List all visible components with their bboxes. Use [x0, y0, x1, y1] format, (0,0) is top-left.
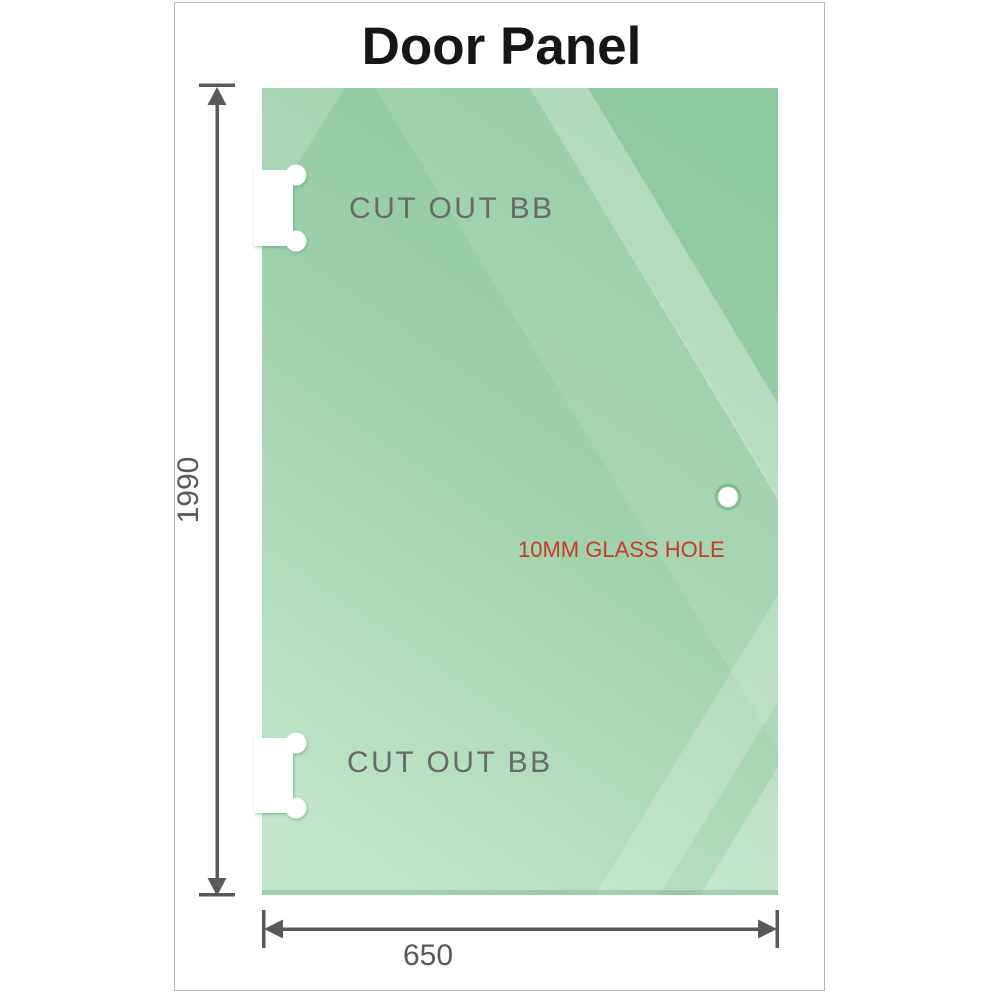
- height-dimension-value: 1990: [172, 457, 206, 524]
- door-panel-diagram: [0, 0, 1000, 1000]
- width-dimension-value: 650: [403, 939, 453, 973]
- glass-hole-label: 10MM GLASS HOLE: [518, 537, 725, 563]
- width-dimension-line: [262, 910, 779, 948]
- glass-hole: [715, 484, 742, 511]
- cutout-bottom-label: CUT OUT BB: [347, 746, 553, 780]
- page-title: Door Panel: [175, 16, 828, 77]
- cutout-top-label: CUT OUT BB: [349, 192, 555, 226]
